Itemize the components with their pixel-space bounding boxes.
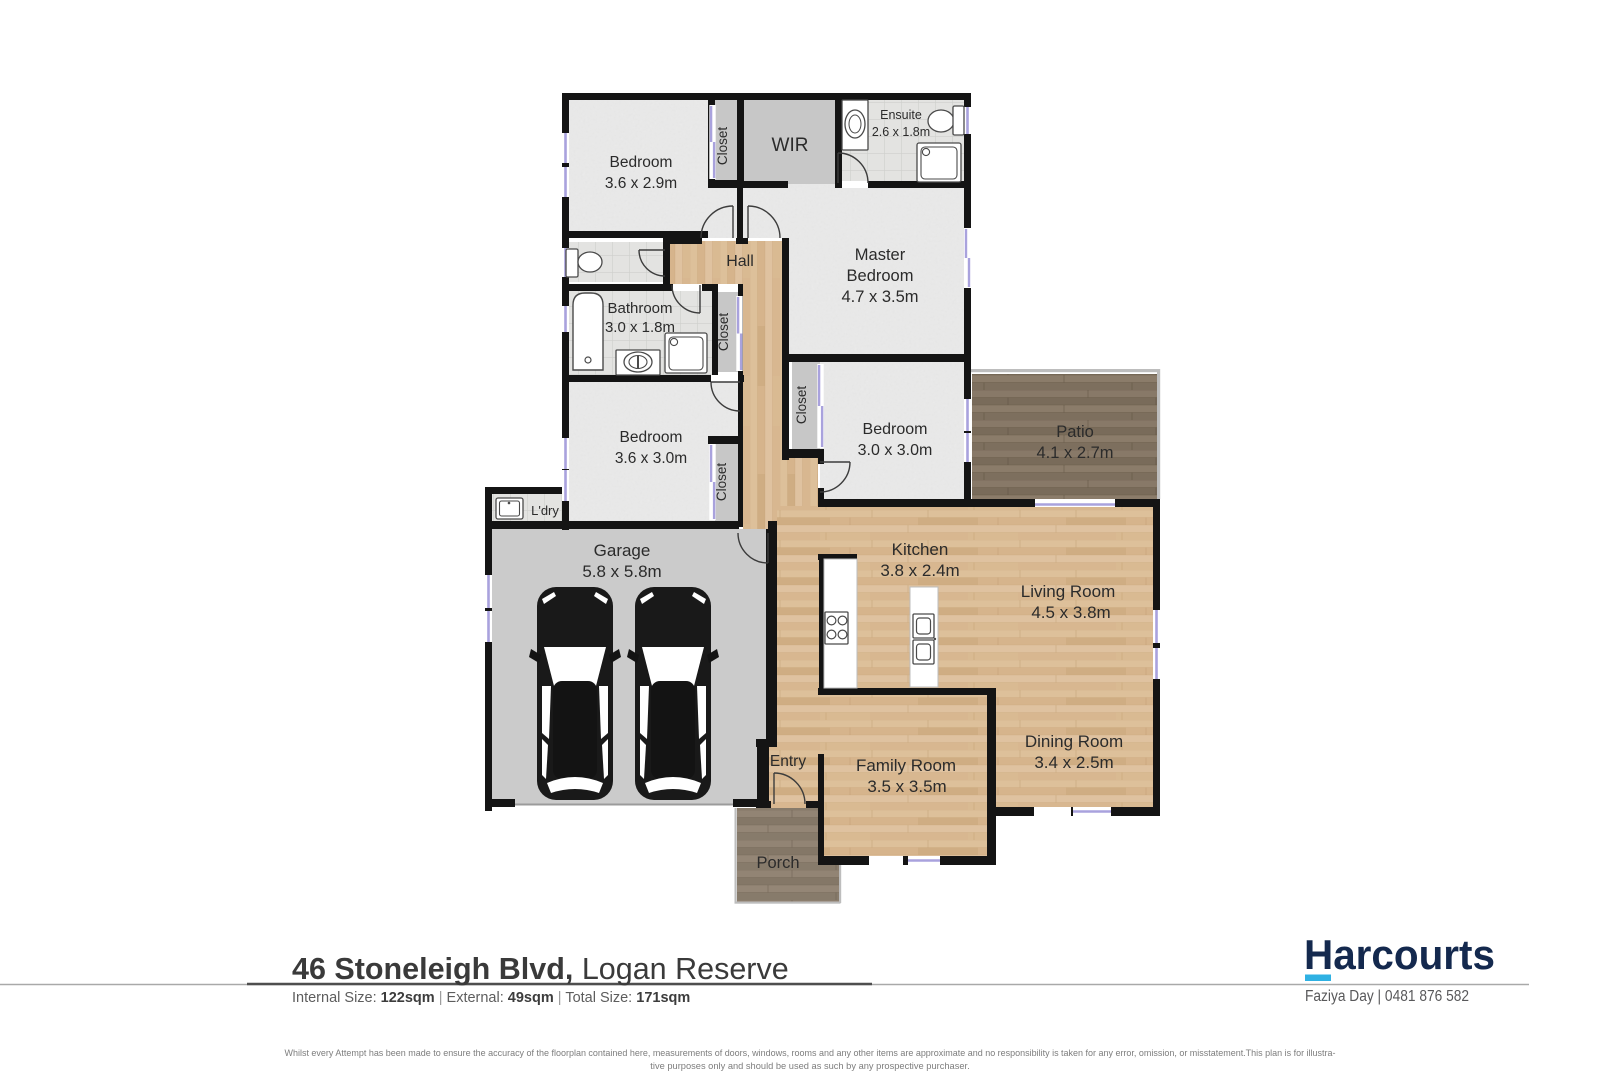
svg-text:3.4 x 2.5m: 3.4 x 2.5m [1034,753,1113,772]
svg-text:Kitchen: Kitchen [892,540,949,559]
svg-text:Bedroom: Bedroom [863,421,928,438]
svg-text:Bedroom: Bedroom [847,267,914,285]
svg-text:Entry: Entry [770,753,806,770]
svg-text:Dining Room: Dining Room [1025,732,1123,751]
svg-text:Internal Size: 122sqm | Extern: Internal Size: 122sqm | External: 49sqm … [292,990,690,1006]
svg-text:3.0 x 1.8m: 3.0 x 1.8m [605,319,675,336]
svg-text:Closet: Closet [716,313,731,352]
svg-text:WIR: WIR [772,135,809,156]
svg-text:Porch: Porch [756,854,799,872]
svg-text:Ensuite: Ensuite [880,108,922,122]
svg-text:5.8 x 5.8m: 5.8 x 5.8m [582,562,661,581]
svg-text:Patio: Patio [1056,423,1094,441]
svg-text:3.6 x 3.0m: 3.6 x 3.0m [615,450,687,467]
svg-text:3.8 x 2.4m: 3.8 x 2.4m [880,561,959,580]
svg-text:Bathroom: Bathroom [607,300,672,317]
svg-text:Bedroom: Bedroom [610,154,673,171]
svg-text:Closet: Closet [714,463,729,502]
svg-text:Family Room: Family Room [856,756,956,775]
svg-text:Harcourts: Harcourts [1304,931,1495,978]
svg-text:Closet: Closet [715,127,730,166]
svg-text:2.6 x 1.8m: 2.6 x 1.8m [872,125,930,139]
svg-text:Closet: Closet [794,386,809,425]
svg-text:L'dry: L'dry [531,503,559,518]
svg-text:3.5 x 3.5m: 3.5 x 3.5m [867,777,946,796]
svg-text:Bedroom: Bedroom [620,429,683,446]
svg-text:Hall: Hall [726,253,754,270]
svg-text:3.6 x 2.9m: 3.6 x 2.9m [605,175,677,192]
svg-text:4.7 x 3.5m: 4.7 x 3.5m [841,288,918,306]
svg-text:Living Room: Living Room [1021,582,1116,601]
svg-text:3.0 x 3.0m: 3.0 x 3.0m [858,442,933,459]
svg-text:Master: Master [855,246,906,264]
svg-text:4.5 x 3.8m: 4.5 x 3.8m [1031,603,1110,622]
svg-text:Whilst every Attempt has been: Whilst every Attempt has been made to en… [285,1048,1336,1058]
svg-text:46 Stoneleigh Blvd, Logan Rese: 46 Stoneleigh Blvd, Logan Reserve [292,952,789,986]
svg-text:Garage: Garage [594,541,651,560]
svg-text:tive purposes only and should: tive purposes only and should be used as… [650,1061,969,1071]
svg-text:Faziya Day | 0481 876 582: Faziya Day | 0481 876 582 [1305,988,1469,1005]
svg-text:4.1 x 2.7m: 4.1 x 2.7m [1036,444,1113,462]
